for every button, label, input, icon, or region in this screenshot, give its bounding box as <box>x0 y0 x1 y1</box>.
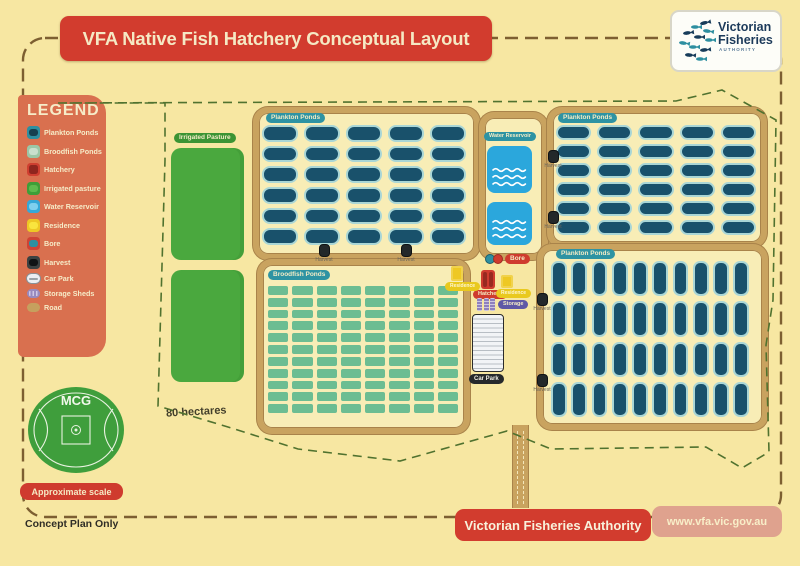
pond <box>389 286 409 295</box>
pond <box>438 369 458 378</box>
pond <box>341 321 361 330</box>
pond <box>680 163 715 178</box>
footer-org-text: Victorian Fisheries Authority <box>465 518 642 533</box>
pond <box>365 392 385 401</box>
pond <box>389 333 409 342</box>
legend-item: Plankton Ponds <box>27 126 101 139</box>
pond <box>652 342 668 377</box>
pond <box>571 342 587 377</box>
pond <box>414 392 434 401</box>
pond <box>292 381 312 390</box>
water-waves-icon <box>487 217 532 243</box>
pond <box>365 321 385 330</box>
pond <box>389 357 409 366</box>
pond <box>721 144 756 159</box>
pond <box>304 146 340 163</box>
harvest-icon <box>319 244 330 257</box>
pond <box>733 261 749 296</box>
pond <box>652 382 668 417</box>
legend-swatch-icon <box>27 145 40 158</box>
plankton-pond-grid <box>551 261 749 417</box>
harvest-marker: Harvest <box>541 211 565 230</box>
legend-item-label: Irrigated pasture <box>44 184 101 193</box>
pond <box>268 310 288 319</box>
poster-page: VFA Native Fish Hatchery Conceptual Layo… <box>0 0 800 566</box>
approximate-scale-badge: Approximate scale <box>20 483 123 500</box>
pond <box>721 182 756 197</box>
harvest-icon <box>537 293 548 306</box>
pond <box>304 187 340 204</box>
legend-item: Car Park <box>27 274 101 283</box>
pond <box>638 163 673 178</box>
pond <box>438 357 458 366</box>
legend-item: Water Reservoir <box>27 200 101 213</box>
pond <box>346 187 382 204</box>
pond <box>551 261 567 296</box>
pond <box>317 310 337 319</box>
pond <box>292 357 312 366</box>
pond <box>733 301 749 336</box>
pond <box>592 301 608 336</box>
pond <box>571 261 587 296</box>
pond <box>632 301 648 336</box>
pond <box>341 381 361 390</box>
pond <box>341 357 361 366</box>
pond <box>597 144 632 159</box>
water-reservoir-pond <box>487 146 532 193</box>
pond <box>268 298 288 307</box>
pond <box>317 404 337 413</box>
plankton-ponds-label: Plankton Ponds <box>266 113 325 123</box>
legend-swatch-icon <box>27 237 40 250</box>
pond <box>430 208 466 225</box>
pond <box>438 392 458 401</box>
pond <box>680 182 715 197</box>
pond <box>365 333 385 342</box>
water-waves-icon <box>487 165 532 191</box>
broodfish-ponds-label: Broodfish Ponds <box>268 270 330 280</box>
pond <box>317 321 337 330</box>
pond <box>713 342 729 377</box>
pond <box>341 404 361 413</box>
pond <box>680 201 715 216</box>
harvest-marker: Harvest <box>394 244 418 263</box>
pond <box>262 146 298 163</box>
pond <box>556 125 591 140</box>
pasture-paddock <box>171 270 244 382</box>
pond <box>268 381 288 390</box>
pond <box>430 146 466 163</box>
pond <box>268 333 288 342</box>
legend-swatch-icon <box>27 303 40 312</box>
legend-item: Road <box>27 303 101 312</box>
pond <box>713 301 729 336</box>
pond <box>317 357 337 366</box>
legend-item-label: Car Park <box>44 274 74 283</box>
pond <box>292 321 312 330</box>
legend-item-label: Residence <box>44 221 80 230</box>
pond <box>365 381 385 390</box>
pond <box>597 125 632 140</box>
pond <box>673 261 689 296</box>
pond <box>693 301 709 336</box>
pond <box>638 201 673 216</box>
pond <box>597 163 632 178</box>
pond <box>365 345 385 354</box>
mcg-label: MCG <box>61 393 91 408</box>
footer-org-banner: Victorian Fisheries Authority <box>455 509 651 541</box>
pond <box>673 342 689 377</box>
pond <box>292 333 312 342</box>
pond <box>317 381 337 390</box>
pond <box>592 261 608 296</box>
legend-swatch-icon <box>27 126 40 139</box>
area-size-label: 80 hectares <box>166 404 227 419</box>
pond <box>268 286 288 295</box>
pond <box>733 342 749 377</box>
pond <box>414 286 434 295</box>
page-title: VFA Native Fish Hatchery Conceptual Layo… <box>60 16 492 61</box>
pond <box>317 286 337 295</box>
pond <box>638 182 673 197</box>
footer-url-text[interactable]: www.vfa.vic.gov.au <box>667 516 767 528</box>
pond <box>612 261 628 296</box>
pond <box>673 382 689 417</box>
fish-school-icon <box>674 18 718 68</box>
pond <box>341 298 361 307</box>
pond <box>317 298 337 307</box>
pond <box>693 382 709 417</box>
car-park-label: Car Park <box>469 374 504 384</box>
pond <box>268 345 288 354</box>
pond <box>388 146 424 163</box>
pond <box>438 404 458 413</box>
pond <box>430 187 466 204</box>
pond <box>341 310 361 319</box>
pond <box>592 382 608 417</box>
legend-item-label: Harvest <box>44 258 70 267</box>
plankton-pond-grid <box>556 125 756 235</box>
pond <box>414 298 434 307</box>
pond <box>346 208 382 225</box>
pond <box>389 392 409 401</box>
pond <box>388 125 424 142</box>
plankton-ponds-label: Plankton Ponds <box>556 249 615 259</box>
legend-swatch-icon <box>27 163 40 176</box>
storage-sheds <box>477 298 495 311</box>
pond <box>632 342 648 377</box>
pond <box>292 345 312 354</box>
pond <box>680 144 715 159</box>
storage-shed-icon <box>477 298 482 311</box>
pond <box>430 125 466 142</box>
pond <box>713 261 729 296</box>
harvest-marker: Harvest <box>530 293 554 312</box>
plankton-pond-grid <box>262 125 466 245</box>
legend-item: Residence <box>27 219 101 232</box>
pond <box>389 298 409 307</box>
water-reservoir-label: Water Reservoir <box>484 132 536 141</box>
legend-item-label: Broodfish Ponds <box>44 147 102 156</box>
pond <box>341 369 361 378</box>
pond <box>680 220 715 235</box>
legend-swatch-icon <box>27 256 40 269</box>
pond <box>346 146 382 163</box>
pond <box>597 182 632 197</box>
pond <box>733 382 749 417</box>
pond <box>414 310 434 319</box>
pond <box>365 286 385 295</box>
pond <box>268 392 288 401</box>
pond <box>414 345 434 354</box>
pond <box>262 125 298 142</box>
pond <box>389 369 409 378</box>
legend-item: Bore <box>27 237 101 250</box>
car-park <box>472 314 504 372</box>
harvest-icon <box>537 374 548 387</box>
legend-items: Plankton Ponds Broodfish Ponds Hatchery … <box>27 126 101 312</box>
residence-label: Residence <box>496 289 531 298</box>
pond <box>389 321 409 330</box>
pond <box>389 381 409 390</box>
harvest-icon <box>548 150 559 163</box>
pond <box>262 208 298 225</box>
pond <box>317 369 337 378</box>
pond <box>388 208 424 225</box>
legend-item-label: Plankton Ponds <box>44 128 98 137</box>
logo-line1: Victorian <box>718 21 773 34</box>
pond <box>430 228 466 245</box>
residence-label: Residence <box>445 282 480 291</box>
pond <box>652 261 668 296</box>
pond <box>721 201 756 216</box>
bore-marker: Bore <box>485 254 530 264</box>
legend-swatch-icon <box>27 219 40 232</box>
pasture-paddock <box>171 148 244 260</box>
pond <box>341 345 361 354</box>
pond <box>317 333 337 342</box>
broodfish-pond-grid <box>268 286 458 413</box>
pond <box>438 310 458 319</box>
pond <box>365 298 385 307</box>
pond <box>262 187 298 204</box>
pond <box>304 208 340 225</box>
pond <box>268 357 288 366</box>
residence-building <box>501 275 513 288</box>
pond <box>612 301 628 336</box>
pond <box>414 404 434 413</box>
pond <box>262 166 298 183</box>
legend-swatch-icon <box>27 274 40 283</box>
pond <box>638 220 673 235</box>
pond <box>388 166 424 183</box>
pond <box>304 166 340 183</box>
pond <box>414 357 434 366</box>
pond <box>268 404 288 413</box>
pond <box>693 342 709 377</box>
pond <box>341 286 361 295</box>
bore-label: Bore <box>505 254 530 264</box>
pond <box>632 382 648 417</box>
pond <box>438 381 458 390</box>
pond <box>388 228 424 245</box>
pond <box>365 357 385 366</box>
legend-item: Broodfish Ponds <box>27 145 101 158</box>
pond <box>292 392 312 401</box>
legend-item: Hatchery <box>27 163 101 176</box>
pond <box>438 321 458 330</box>
harvest-marker: Harvest <box>541 150 565 169</box>
legend-title: LEGEND <box>27 102 101 120</box>
pond <box>292 404 312 413</box>
pond <box>389 404 409 413</box>
vfa-logo: Victorian Fisheries AUTHORITY <box>670 10 782 72</box>
legend-item: Irrigated pasture <box>27 182 101 195</box>
legend-item: Storage Sheds <box>27 289 101 298</box>
pond <box>304 228 340 245</box>
pond <box>317 345 337 354</box>
pond <box>304 125 340 142</box>
legend-item: Harvest <box>27 256 101 269</box>
pond <box>262 228 298 245</box>
pond <box>268 321 288 330</box>
pond <box>292 310 312 319</box>
pond <box>612 382 628 417</box>
pond <box>268 369 288 378</box>
pond <box>430 166 466 183</box>
pond <box>317 392 337 401</box>
pond <box>389 310 409 319</box>
pond <box>680 125 715 140</box>
pond <box>612 342 628 377</box>
hatchery-building <box>481 270 495 289</box>
pond <box>438 333 458 342</box>
pond <box>414 321 434 330</box>
legend-swatch-icon <box>27 182 40 195</box>
legend-item-label: Hatchery <box>44 165 75 174</box>
legend-swatch-icon <box>27 200 40 213</box>
storage-shed-icon <box>490 298 495 311</box>
harvest-icon <box>401 244 412 257</box>
access-road-south <box>512 425 529 508</box>
legend-item-label: Storage Sheds <box>44 289 94 298</box>
pond <box>292 298 312 307</box>
pond <box>556 182 591 197</box>
pond <box>673 301 689 336</box>
pond <box>597 220 632 235</box>
legend-swatch-icon <box>27 289 40 298</box>
pond <box>365 369 385 378</box>
pond <box>652 301 668 336</box>
pond <box>388 187 424 204</box>
pond <box>571 382 587 417</box>
pond <box>597 201 632 216</box>
bore-pump-icon <box>493 254 503 264</box>
pond <box>721 220 756 235</box>
pond <box>365 404 385 413</box>
harvest-marker: Harvest <box>530 374 554 393</box>
approximate-scale-text: Approximate scale <box>31 487 111 497</box>
residence-building <box>451 266 463 281</box>
pond <box>341 333 361 342</box>
harvest-icon <box>548 211 559 224</box>
pond <box>571 301 587 336</box>
footer-url-banner[interactable]: www.vfa.vic.gov.au <box>652 506 782 537</box>
harvest-marker: Harvest <box>312 244 336 263</box>
legend-item-label: Water Reservoir <box>44 202 99 211</box>
pond <box>365 310 385 319</box>
pond <box>438 345 458 354</box>
pond <box>346 166 382 183</box>
pond <box>346 125 382 142</box>
pond <box>638 125 673 140</box>
page-title-text: VFA Native Fish Hatchery Conceptual Layo… <box>83 28 470 50</box>
water-reservoir-pond <box>487 202 532 245</box>
pond <box>632 261 648 296</box>
pond <box>414 369 434 378</box>
pond <box>414 333 434 342</box>
plankton-ponds-label: Plankton Ponds <box>558 113 617 123</box>
mcg-oval-icon: MCG <box>24 384 128 476</box>
pond <box>713 382 729 417</box>
pond <box>292 369 312 378</box>
legend-panel: LEGEND Plankton Ponds Broodfish Ponds Ha… <box>18 95 106 357</box>
pond <box>693 261 709 296</box>
pond <box>414 381 434 390</box>
legend-item-label: Bore <box>44 239 60 248</box>
pond <box>592 342 608 377</box>
pond <box>721 125 756 140</box>
pond <box>438 298 458 307</box>
pond <box>638 144 673 159</box>
pond <box>341 392 361 401</box>
storage-shed-icon <box>484 298 489 311</box>
pond <box>346 228 382 245</box>
logo-wordmark: Victorian Fisheries AUTHORITY <box>718 21 773 53</box>
pond <box>551 342 567 377</box>
storage-label: Storage <box>498 300 528 309</box>
logo-line3: AUTHORITY <box>719 48 773 53</box>
pond <box>389 345 409 354</box>
pond <box>721 163 756 178</box>
concept-plan-note: Concept Plan Only <box>25 518 118 530</box>
logo-line2: Fisheries <box>718 34 773 47</box>
pond <box>292 286 312 295</box>
legend-item-label: Road <box>44 303 62 312</box>
irrigated-pasture-label: Irrigated Pasture <box>174 133 236 143</box>
